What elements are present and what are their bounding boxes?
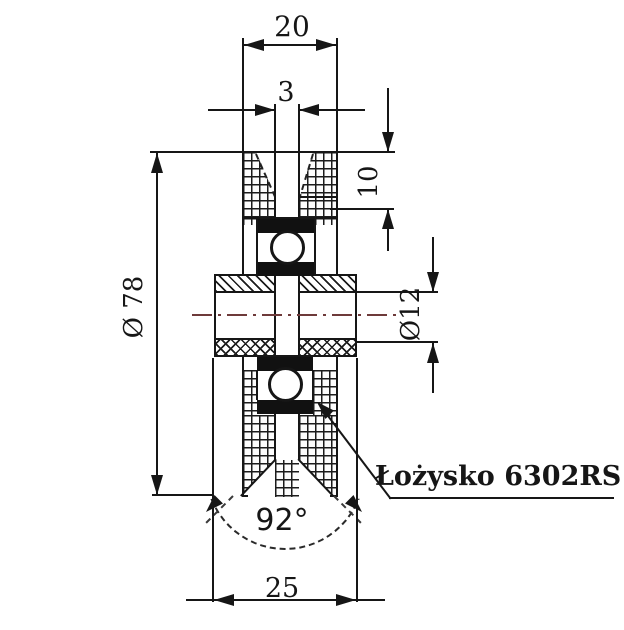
hub-hatch-bottom-right	[299, 339, 355, 355]
rim-right-edge-upper	[336, 152, 338, 274]
callout-underline	[389, 497, 614, 499]
dim25-value: 25	[262, 574, 302, 602]
groove-slot-bottom	[275, 415, 299, 460]
dim92-value: 92°	[252, 505, 312, 537]
rim-top-edge-line	[150, 151, 395, 153]
rim-top-knurl-right-stub	[315, 218, 337, 225]
bearing-bottom-seal-lower	[257, 400, 313, 414]
dim78-value: Ø 78	[119, 266, 149, 348]
dim25-ext-right	[356, 358, 358, 602]
engineering-drawing-canvas: 20 3 10 Ø 78 Ø12 92° 25 Łożysko 6302RS	[0, 0, 624, 630]
dim12-value: Ø12	[397, 282, 425, 346]
rim-left-edge-lower	[242, 357, 244, 497]
dim78-arrow-top	[151, 153, 163, 173]
bore-bottom-line-left	[214, 338, 275, 340]
bearing-top-ball	[270, 230, 305, 265]
groove-slot-top	[275, 152, 299, 218]
rim-bottom-knurl-left-col	[243, 370, 257, 415]
slot-left-edge-upper	[274, 104, 276, 218]
bearing-bottom-left-edge	[256, 371, 258, 400]
slot-left-edge-lower	[274, 414, 276, 460]
bore-top-line-left	[214, 291, 275, 293]
dim25-tail-right	[357, 599, 385, 601]
dim25-tail-left	[186, 599, 213, 601]
dim20-value: 20	[272, 12, 312, 42]
bore-top-line-right	[299, 291, 357, 293]
groove-step-line	[299, 196, 337, 198]
dim25-arrow-right	[336, 594, 356, 606]
bearing-bottom-ball	[268, 367, 303, 402]
rim-bottom-edge-left-tip	[242, 495, 248, 497]
bearing-bottom-right-edge	[312, 371, 314, 400]
hub-hatch-top-left	[216, 276, 275, 292]
dim25-arrow-left	[214, 594, 234, 606]
bearing-top-right-edge	[314, 218, 316, 276]
axis-centerline	[192, 314, 398, 316]
dim3-value: 3	[271, 78, 301, 106]
slot-right-edge-lower	[298, 414, 300, 460]
bore-bottom-line-right	[299, 338, 357, 340]
dim12-arrow-top	[427, 272, 439, 292]
slot-left-edge-mid	[274, 276, 276, 357]
dim78-line	[156, 152, 158, 495]
dim10-arrow-top	[382, 132, 394, 152]
rim-top-knurl-left-stub	[243, 218, 257, 225]
slot-right-edge-upper	[298, 104, 300, 218]
dim78-arrow-bottom	[151, 475, 163, 495]
rim-left-edge-upper	[242, 152, 244, 274]
dim20-ext-left	[242, 38, 244, 152]
dim12-arrow-bottom	[427, 343, 439, 363]
hub-hatch-bottom-left	[216, 339, 275, 355]
dim20-ext-right	[336, 38, 338, 152]
dim10-value: 10	[355, 155, 383, 209]
dim20-arrow-right	[316, 39, 336, 51]
bearing-top-left-edge	[256, 218, 258, 276]
slot-right-edge-mid	[298, 276, 300, 357]
dim25-ext-left	[212, 358, 214, 602]
dim10-arrow-bottom	[382, 209, 394, 229]
bearing-callout-label: Łożysko 6302RS	[392, 460, 604, 492]
dim20-arrow-left	[244, 39, 264, 51]
hub-hatch-top-right	[299, 276, 355, 292]
dim3-arrow-right	[299, 104, 319, 116]
